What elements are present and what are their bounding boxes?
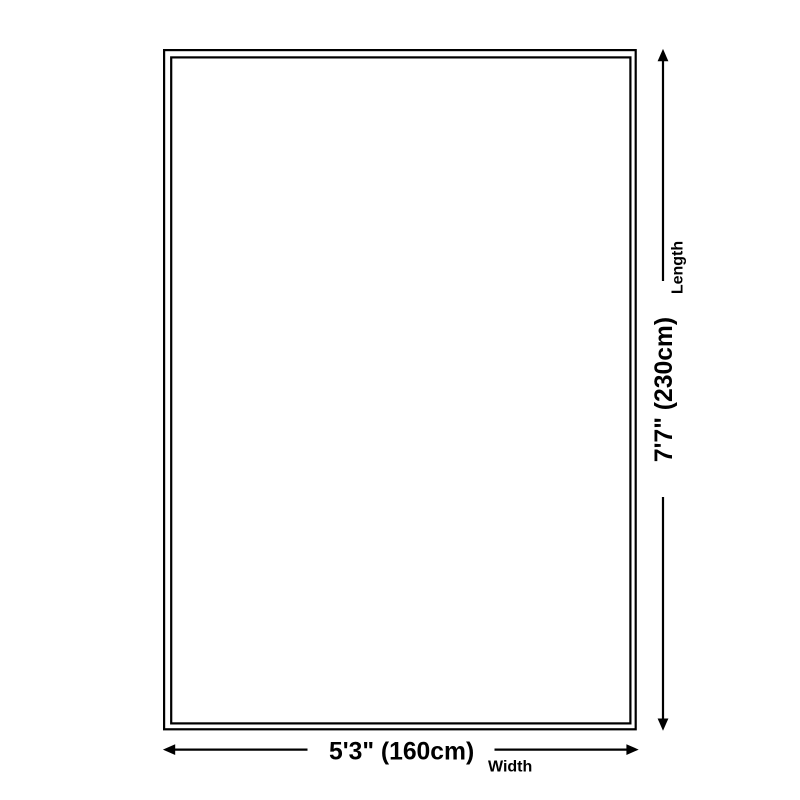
svg-text:7'7" (230cm): 7'7" (230cm) [651, 317, 678, 462]
svg-text:Width: Width [488, 759, 532, 776]
svg-text:5'3" (160cm): 5'3" (160cm) [329, 738, 474, 765]
svg-text:Length: Length [670, 241, 687, 294]
